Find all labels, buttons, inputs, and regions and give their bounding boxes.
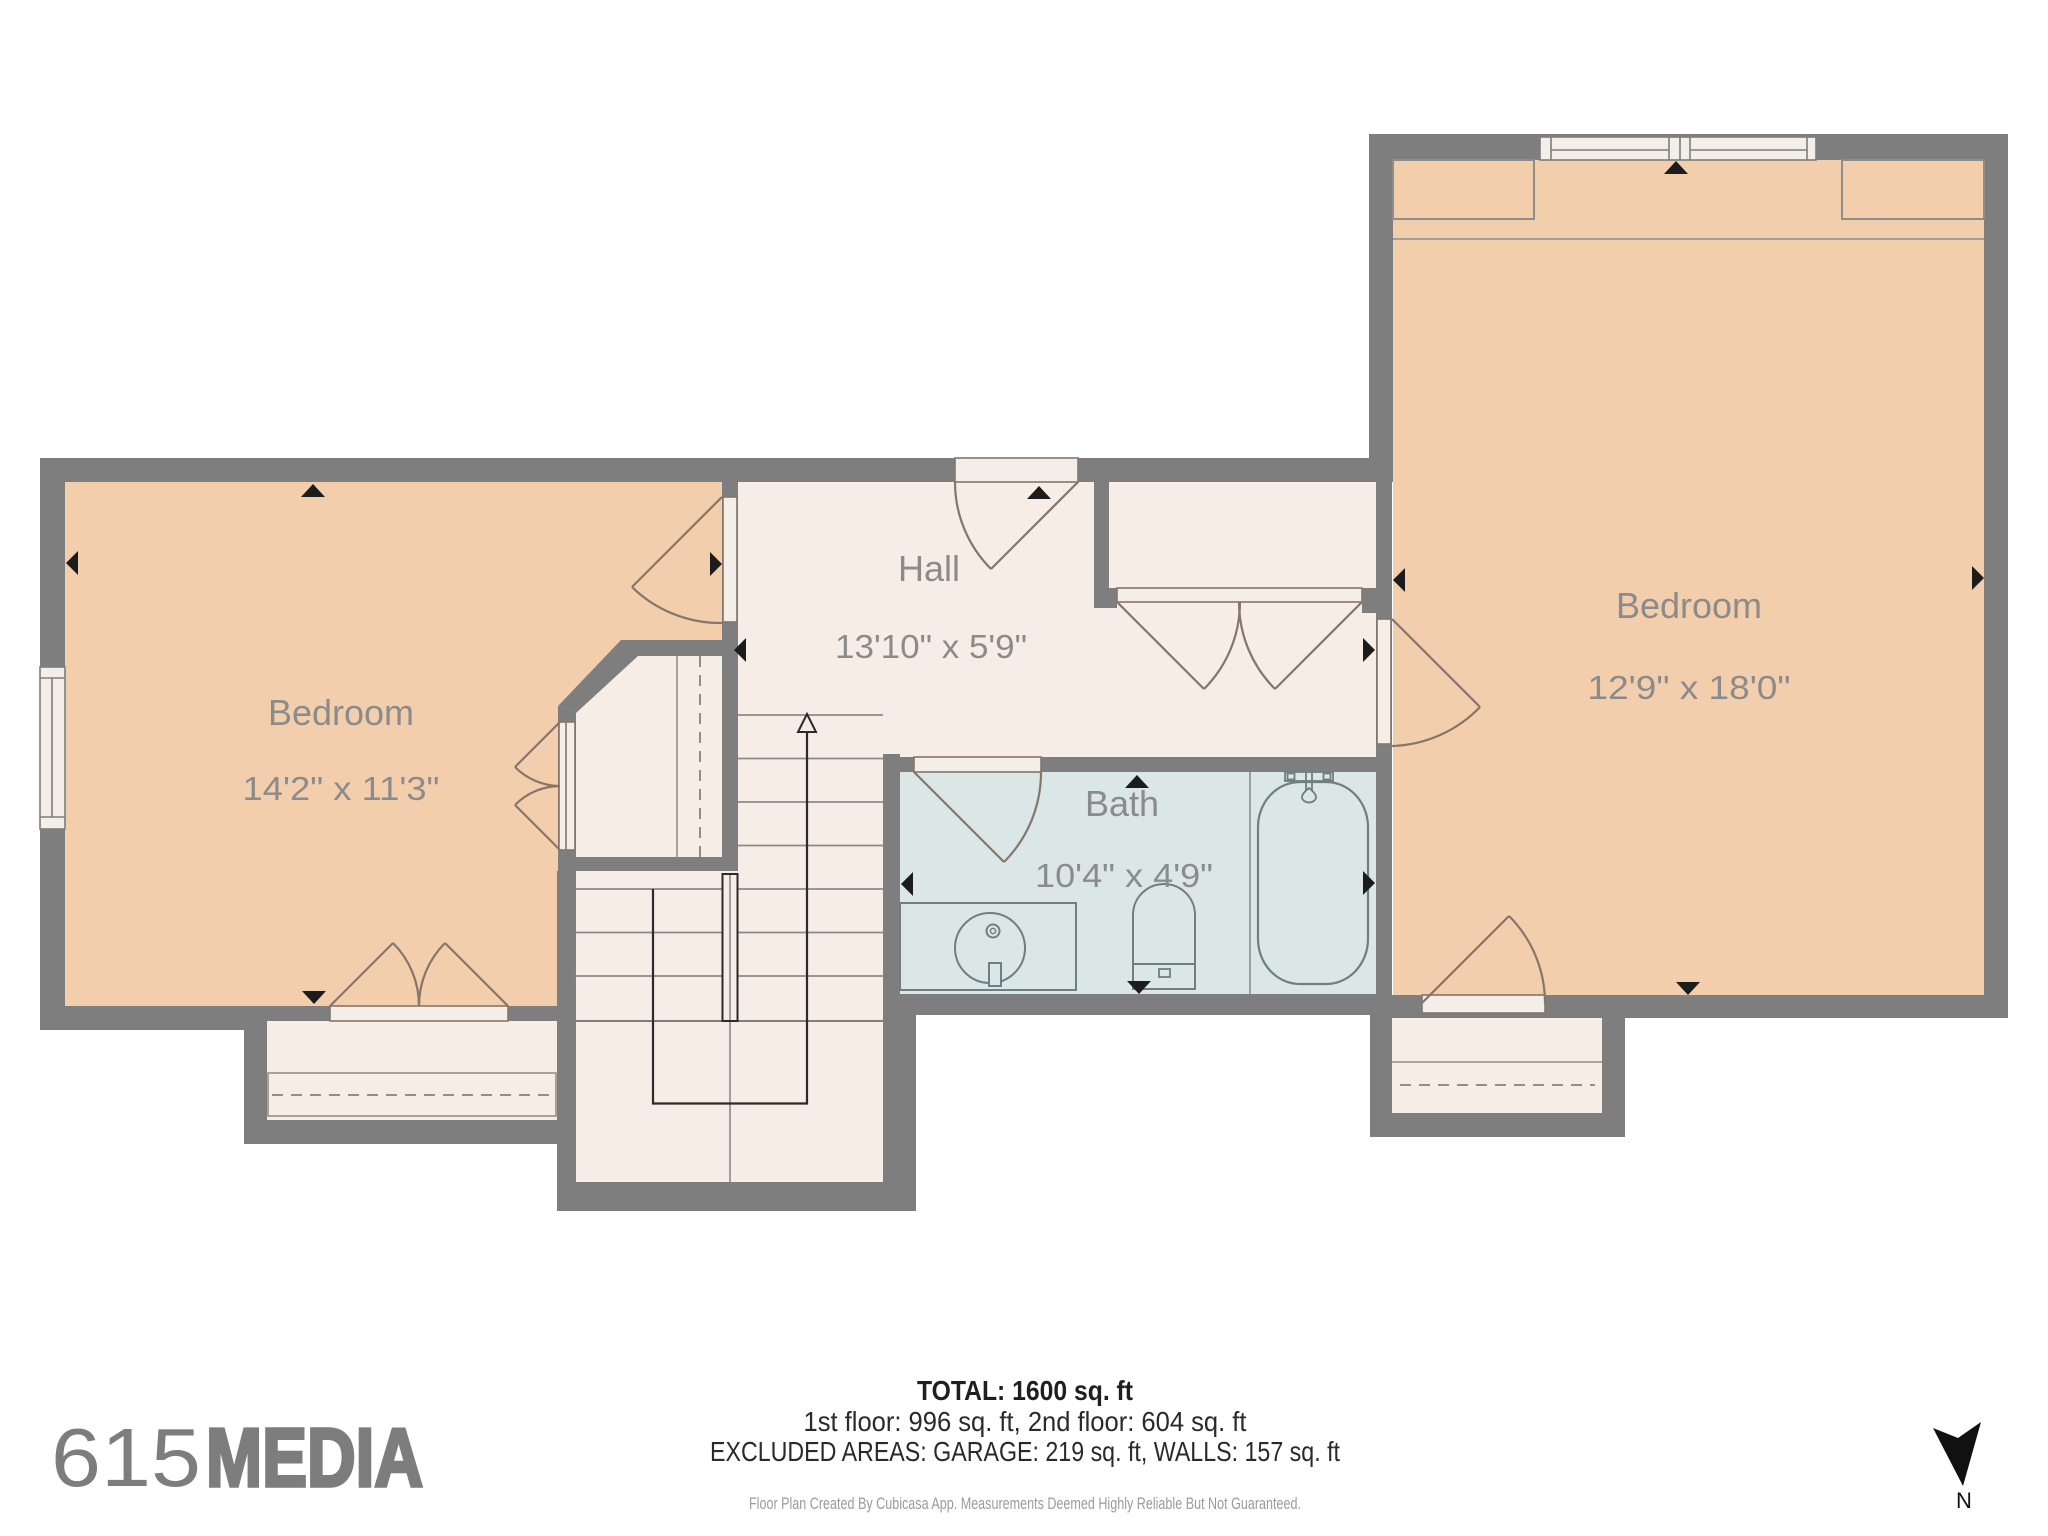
svg-text:1st floor: 996 sq. ft, 2nd flo: 1st floor: 996 sq. ft, 2nd floor: 604 sq… — [804, 1406, 1247, 1437]
svg-text:Floor Plan Created By Cubicasa: Floor Plan Created By Cubicasa App. Meas… — [749, 1494, 1301, 1513]
svg-text:14'2" x 11'3": 14'2" x 11'3" — [243, 770, 440, 807]
svg-text:10'4" x 4'9": 10'4" x 4'9" — [1035, 857, 1213, 894]
svg-text:Bath: Bath — [1085, 783, 1159, 824]
svg-text:MEDIA: MEDIA — [206, 1411, 423, 1504]
svg-text:TOTAL: 1600 sq. ft: TOTAL: 1600 sq. ft — [917, 1375, 1133, 1406]
svg-text:N: N — [1956, 1488, 1972, 1513]
svg-text:615: 615 — [51, 1411, 201, 1504]
svg-text:Hall: Hall — [898, 548, 960, 589]
svg-text:12'9" x 18'0": 12'9" x 18'0" — [1588, 669, 1791, 706]
svg-text:Bedroom: Bedroom — [268, 692, 414, 733]
svg-text:13'10" x 5'9": 13'10" x 5'9" — [835, 628, 1027, 665]
svg-text:EXCLUDED AREAS: GARAGE: 219 sq: EXCLUDED AREAS: GARAGE: 219 sq. ft, WALL… — [710, 1436, 1340, 1467]
svg-text:Bedroom: Bedroom — [1616, 585, 1762, 626]
